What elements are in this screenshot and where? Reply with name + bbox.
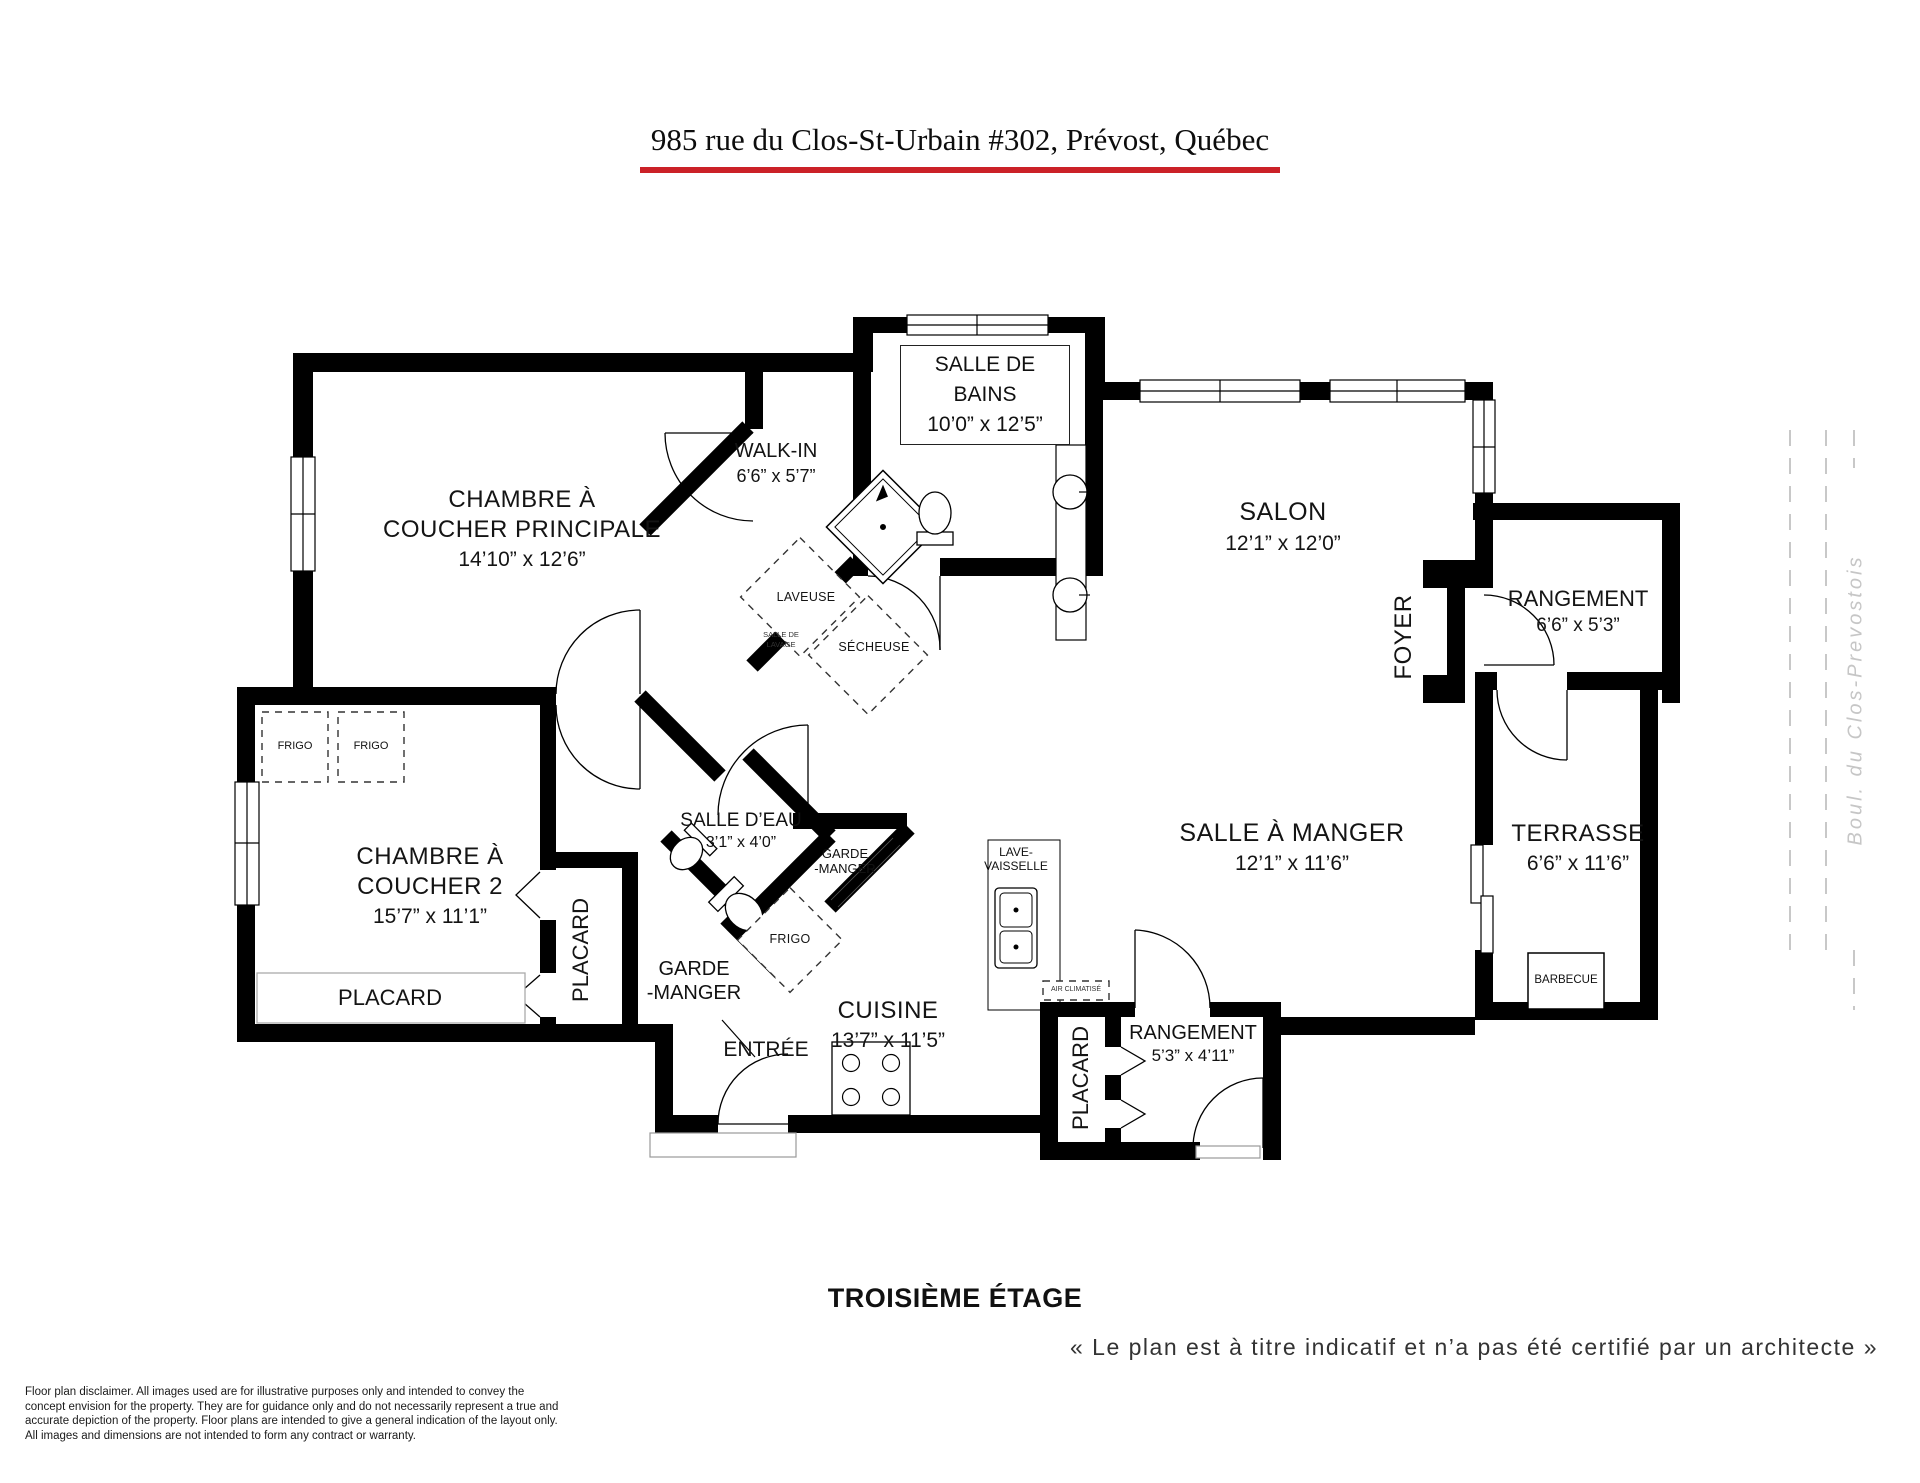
bbq-label: BARBECUE (1534, 974, 1597, 986)
pantry-small-label-1: GARDE (822, 846, 868, 861)
room-dims-bedroom2: 15’7” x 11’1” (373, 905, 487, 929)
door-dining-storage (1135, 930, 1210, 1008)
disclaimer-line-1: Floor plan disclaimer. All images used a… (25, 1385, 558, 1400)
pantry-small-label-2: -MANGER (814, 861, 875, 876)
floor-label: TROISIÈME ÉTAGE (828, 1283, 1083, 1314)
disclaimer-line-3: accurate depiction of the property. Floo… (25, 1414, 558, 1429)
dashed-appliances (262, 538, 1109, 1000)
bifold-closet-bedroom2-1 (516, 872, 540, 918)
room-dims-terrace: 6’6” x 11’6” (1527, 852, 1629, 876)
room-label-entry: ENTRÉE (723, 1038, 808, 1062)
room-label-master-1: CHAMBRE À (448, 486, 595, 514)
window-salon-2 (1330, 380, 1465, 402)
disclaimer-line-2: concept envision for the property. They … (25, 1400, 558, 1415)
room-dims-storage-small: 5’3” x 4’11” (1152, 1046, 1235, 1066)
road-label: Boul. du Clos-Prevostois (1845, 555, 1868, 846)
room-dims-bathroom: 10’0” x 12’5” (901, 413, 1069, 437)
architect-quote: « Le plan est à titre indicatif et n’a p… (1070, 1334, 1878, 1361)
washer-label: LAVEUSE (777, 590, 836, 604)
bifold-closet-kitchen-1 (1121, 1047, 1145, 1075)
closet-label-bedroom2-vertical: PLACARD (568, 898, 594, 1002)
laundry-room-label-2: LAVAGE (767, 640, 796, 649)
room-label-foyer: FOYER (1390, 594, 1418, 679)
fridge-1-label: FRIGO (278, 740, 313, 752)
room-label-bedroom2-2: COUCHER 2 (357, 873, 503, 901)
toilet-bathroom-icon (917, 492, 953, 545)
room-label-powder: SALLE D’EAU (680, 810, 801, 832)
title-underline (640, 167, 1280, 173)
dryer-label: SÉCHEUSE (838, 640, 909, 654)
room-label-storage-top: RANGEMENT (1508, 586, 1649, 612)
bathroom-vanity-icon (1053, 445, 1090, 640)
room-label-terrace: TERRASSE (1511, 820, 1644, 848)
closet-label-kitchen: PLACARD (1068, 1026, 1094, 1130)
fridge-kitchen-label: FRIGO (769, 932, 810, 946)
room-label-salon: SALON (1239, 498, 1326, 527)
dishwasher-label-1: LAVE- (999, 845, 1033, 859)
pantry-large-label-1: GARDE (658, 958, 729, 981)
room-label-bedroom2-1: CHAMBRE À (356, 843, 503, 871)
ac-label: AIR CLIMATISÉ (1051, 985, 1101, 994)
room-dims-dining: 12’1” x 11’6” (1235, 852, 1349, 876)
disclaimer-line-4: All images and dimensions are not intend… (25, 1429, 558, 1444)
patio-door-terrace (1471, 845, 1493, 953)
entrance-landing (650, 1133, 796, 1157)
room-label-dining: SALLE À MANGER (1179, 819, 1404, 848)
door-master (556, 610, 640, 789)
room-dims-storage-top: 6’6” x 5’3” (1536, 615, 1619, 637)
window-salon-east (1473, 400, 1495, 493)
room-dims-master: 14’10” x 12’6” (458, 548, 585, 572)
laundry-room-label-1: SALLE DE (763, 630, 799, 639)
room-label-walkin: WALK-IN (735, 440, 818, 463)
room-dims-powder: 3’1” x 4’0” (706, 834, 776, 852)
window-bathroom (907, 315, 1048, 335)
room-label-bathroom-box: SALLE DE BAINS 10’0” x 12’5” (900, 345, 1070, 445)
closet-label-bedroom2-wall: PLACARD (338, 985, 442, 1011)
storage-door-threshold (1196, 1146, 1260, 1158)
room-label-bathroom-1: SALLE DE (901, 353, 1069, 377)
room-label-master-2: COUCHER PRINCIPALE (383, 516, 661, 544)
fridge-2-label: FRIGO (354, 740, 389, 752)
kitchen-sink-icon (995, 888, 1037, 968)
floorplan-page: 985 rue du Clos-St-Urbain #302, Prévost,… (0, 0, 1920, 1483)
room-label-bathroom-2: BAINS (901, 383, 1069, 407)
room-dims-salon: 12’1” x 12’0” (1225, 532, 1341, 556)
page-title: 985 rue du Clos-St-Urbain #302, Prévost,… (651, 122, 1269, 158)
room-label-kitchen: CUISINE (838, 997, 939, 1025)
window-master-west (291, 457, 315, 571)
bifold-closet-kitchen-2 (1121, 1100, 1145, 1128)
room-label-storage-small: RANGEMENT (1129, 1022, 1257, 1045)
door-terrace (1497, 690, 1567, 760)
room-dims-walkin: 6’6” x 5’7” (736, 466, 815, 487)
window-salon-1 (1140, 380, 1300, 402)
pantry-large-label-2: -MANGER (647, 982, 741, 1005)
door-entrance (718, 1054, 788, 1124)
window-bedroom2-west (235, 782, 259, 905)
disclaimer: Floor plan disclaimer. All images used a… (25, 1385, 558, 1443)
door-storage-exterior (1193, 1078, 1263, 1148)
dishwasher-label-2: VAISSELLE (984, 859, 1048, 873)
room-dims-kitchen: 13’7” x 11’5” (831, 1029, 945, 1053)
